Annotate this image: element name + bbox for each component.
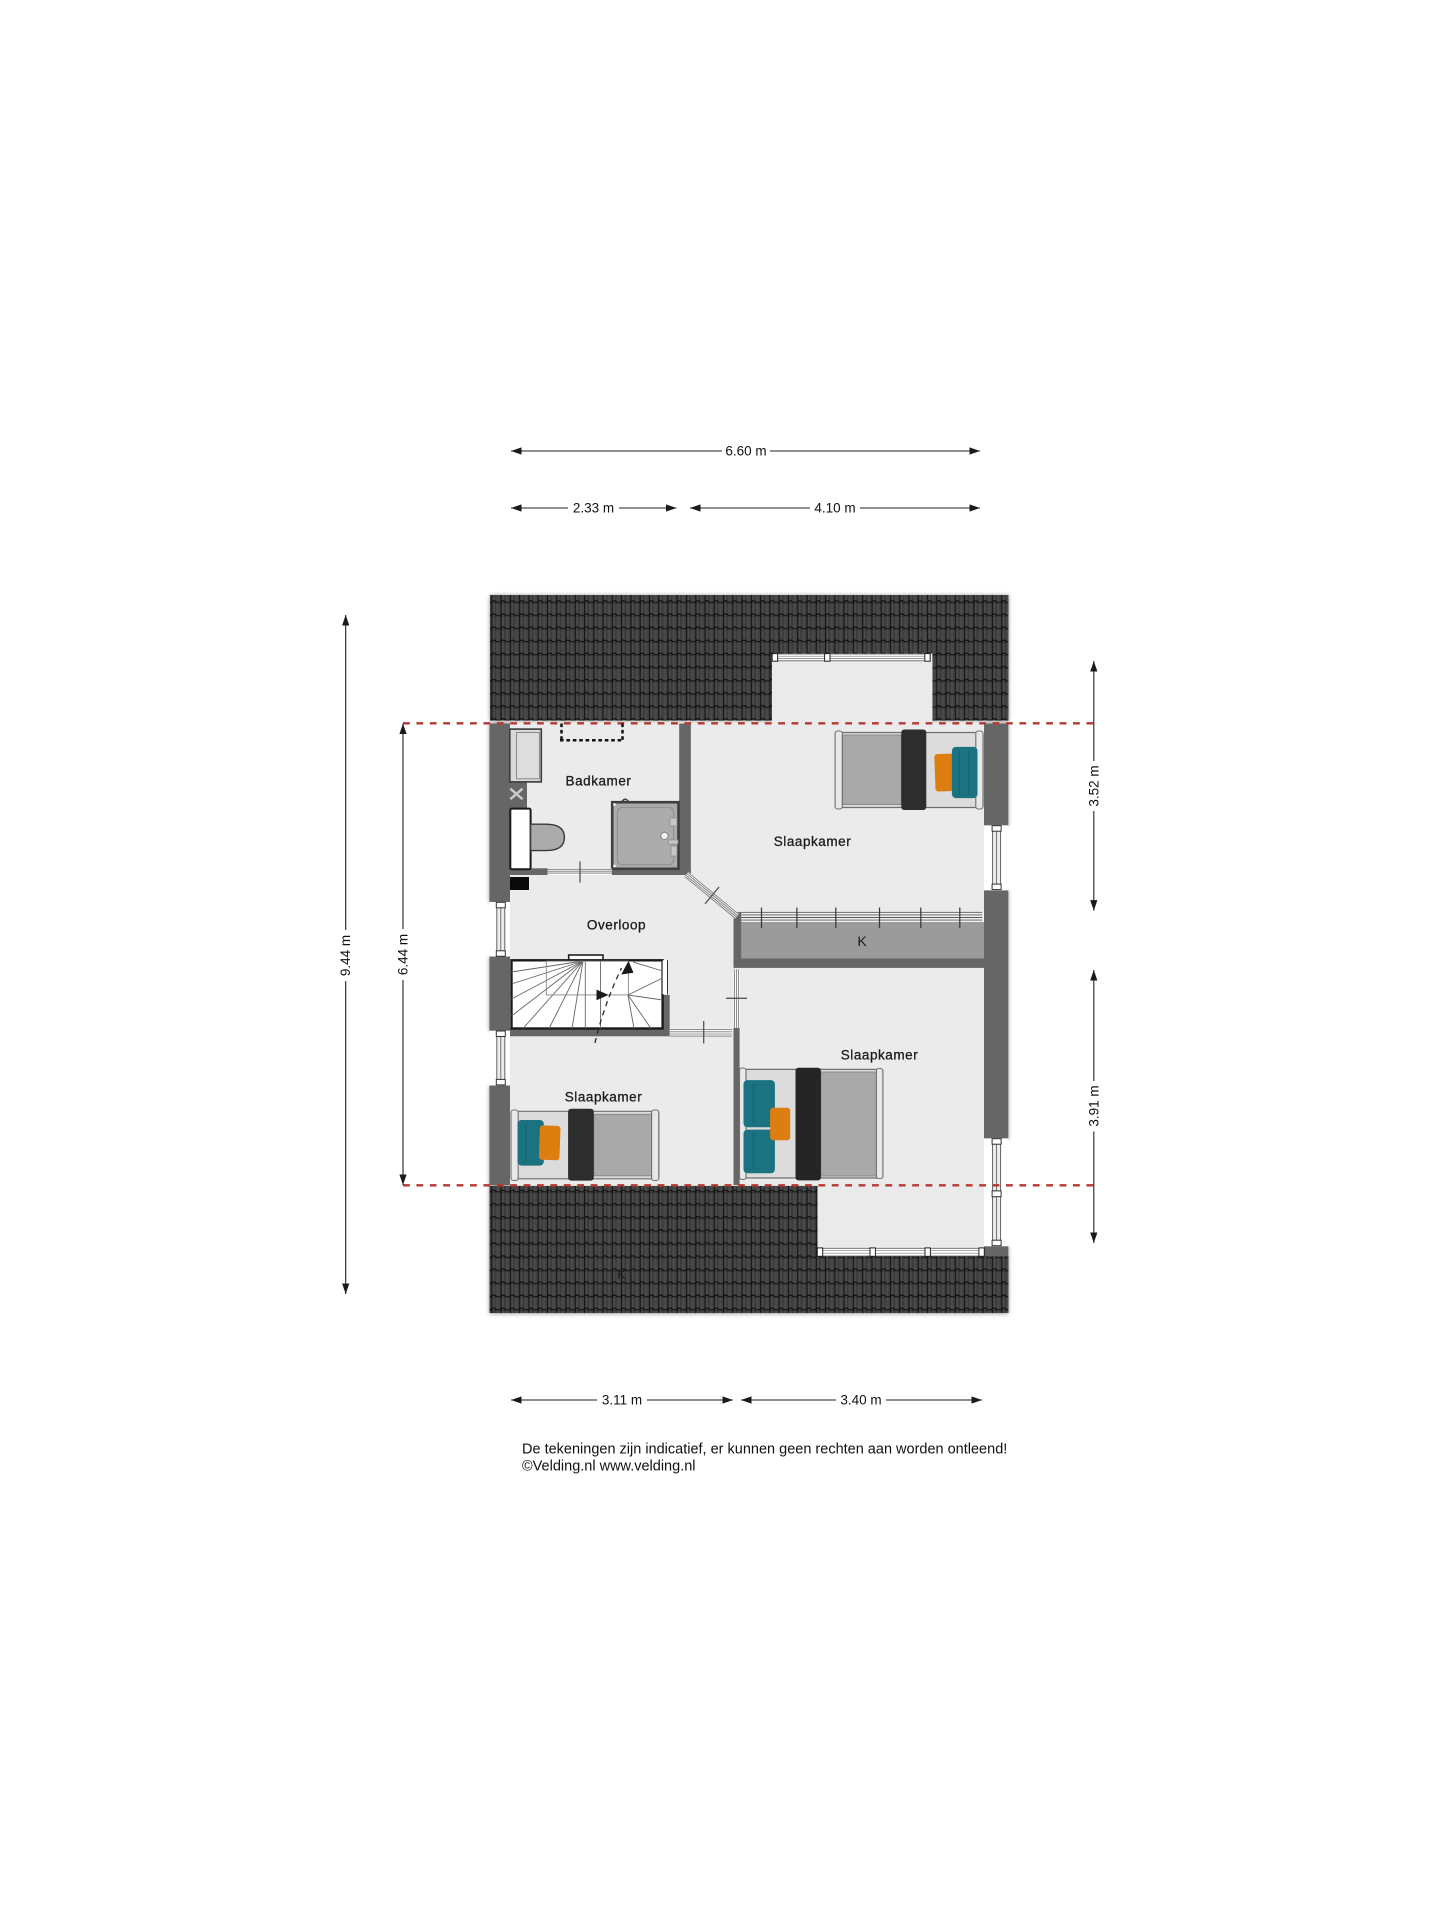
- svg-text:K: K: [617, 1268, 626, 1282]
- svg-text:Slaapkamer: Slaapkamer: [774, 834, 852, 849]
- svg-text:6.60 m: 6.60 m: [725, 444, 766, 459]
- svg-text:K: K: [857, 933, 867, 949]
- svg-text:3.91 m: 3.91 m: [1086, 1085, 1101, 1126]
- svg-text:De tekeningen zijn indicatief,: De tekeningen zijn indicatief, er kunnen…: [522, 1442, 1007, 1458]
- svg-text:4.10 m: 4.10 m: [814, 501, 855, 516]
- svg-text:6.44 m: 6.44 m: [396, 934, 411, 975]
- svg-text:9.44 m: 9.44 m: [338, 935, 353, 976]
- svg-text:Badkamer: Badkamer: [566, 774, 632, 789]
- svg-text:3.11 m: 3.11 m: [602, 1393, 642, 1408]
- svg-text:Slaapkamer: Slaapkamer: [841, 1048, 919, 1063]
- svg-text:Slaapkamer: Slaapkamer: [565, 1090, 643, 1105]
- svg-text:3.52 m: 3.52 m: [1086, 765, 1101, 806]
- svg-text:3.40 m: 3.40 m: [840, 1393, 881, 1408]
- svg-text:Overloop: Overloop: [587, 918, 646, 933]
- svg-text:2.33 m: 2.33 m: [573, 501, 614, 516]
- svg-text:©Velding.nl www.velding.nl: ©Velding.nl www.velding.nl: [522, 1459, 696, 1475]
